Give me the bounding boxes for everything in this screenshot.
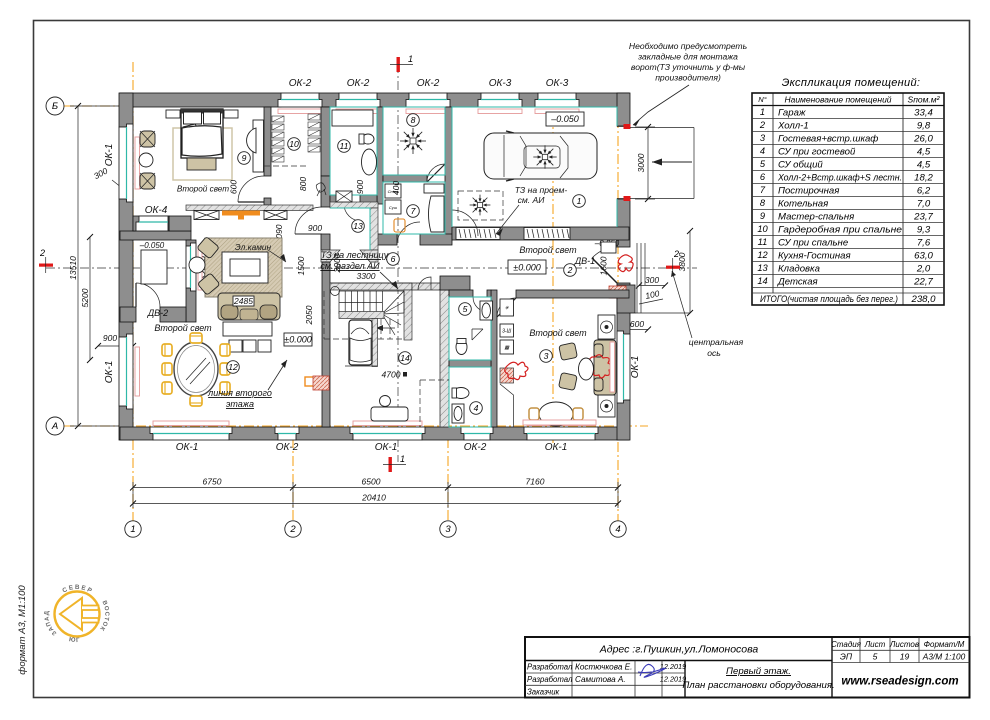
svg-text:1: 1 xyxy=(130,524,135,535)
svg-text:13: 13 xyxy=(353,221,363,231)
svg-text:Экспликация помещений:: Экспликация помещений: xyxy=(782,77,920,89)
svg-text:2: 2 xyxy=(289,524,296,535)
svg-text:ОК-1: ОК-1 xyxy=(176,442,199,453)
svg-text:±0.000: ±0.000 xyxy=(284,335,311,345)
svg-text:1500: 1500 xyxy=(296,256,306,275)
svg-text:23,7: 23,7 xyxy=(913,211,933,222)
svg-text:1: 1 xyxy=(400,454,405,464)
svg-text:6,2: 6,2 xyxy=(917,185,931,196)
svg-text:3-Ш: 3-Ш xyxy=(502,329,511,335)
svg-text:400: 400 xyxy=(391,181,401,195)
svg-text:ОК-1: ОК-1 xyxy=(630,356,641,379)
svg-text:238,0: 238,0 xyxy=(910,294,936,305)
svg-text:600: 600 xyxy=(229,180,239,194)
svg-text:18,2: 18,2 xyxy=(914,172,933,183)
svg-text:33,4: 33,4 xyxy=(914,107,933,118)
svg-text:Постирочная: Постирочная xyxy=(778,185,839,196)
svg-text:СУ общий: СУ общий xyxy=(778,159,823,170)
svg-text:4,5: 4,5 xyxy=(917,159,931,170)
svg-text:Кухня-Гостиная: Кухня-Гостиная xyxy=(778,250,851,261)
svg-text:4: 4 xyxy=(474,403,479,413)
svg-text:ОК-2: ОК-2 xyxy=(289,78,312,89)
svg-text:2: 2 xyxy=(673,249,679,259)
svg-text:Необходимо предусмотреть: Необходимо предусмотреть xyxy=(629,41,748,51)
svg-text:1: 1 xyxy=(408,54,413,64)
svg-text:3: 3 xyxy=(760,133,766,143)
svg-text:ОК-3: ОК-3 xyxy=(489,78,512,89)
svg-text:1: 1 xyxy=(577,196,582,206)
svg-text:этажа: этажа xyxy=(226,399,254,409)
svg-text:2050: 2050 xyxy=(304,305,314,325)
svg-text:закладные для монтажа: закладные для монтажа xyxy=(637,52,738,62)
svg-text:Первый этаж.: Первый этаж. xyxy=(726,666,791,677)
svg-text:ОК-2: ОК-2 xyxy=(347,78,370,89)
svg-text:СУ при спальне: СУ при спальне xyxy=(778,237,848,248)
svg-text:см. раздел АИ: см. раздел АИ xyxy=(320,261,380,271)
svg-text:6750: 6750 xyxy=(203,477,222,487)
svg-text:Б: Б xyxy=(52,101,58,112)
svg-text:Котельная: Котельная xyxy=(778,198,828,209)
svg-text:Гостевая+встр.шкаф: Гостевая+встр.шкаф xyxy=(778,133,878,144)
svg-text:Детская: Детская xyxy=(777,276,818,287)
svg-text:www.rseadesign.com: www.rseadesign.com xyxy=(841,676,958,688)
svg-text:7160: 7160 xyxy=(526,477,545,487)
svg-text:Второй свет: Второй свет xyxy=(177,185,229,194)
svg-text:Суш: Суш xyxy=(389,205,398,210)
svg-text:9: 9 xyxy=(242,153,247,163)
svg-text:Холл-1: Холл-1 xyxy=(777,120,809,131)
svg-text:ОК-2: ОК-2 xyxy=(417,78,440,89)
svg-text:см. АИ: см. АИ xyxy=(518,195,546,205)
svg-text:Разработал: Разработал xyxy=(527,675,573,684)
svg-text:–0.050: –0.050 xyxy=(550,114,579,124)
svg-text:11: 11 xyxy=(758,237,768,247)
svg-text:ОК-1: ОК-1 xyxy=(545,442,568,453)
svg-text:ось: ось xyxy=(707,348,721,358)
svg-text:4: 4 xyxy=(615,524,620,535)
svg-text:12: 12 xyxy=(228,362,238,372)
svg-text:ДВ-1: ДВ-1 xyxy=(574,256,595,266)
svg-text:5: 5 xyxy=(873,651,878,661)
svg-text:3000: 3000 xyxy=(636,153,646,172)
svg-text:–0.050: –0.050 xyxy=(139,241,165,250)
svg-text:Лист: Лист xyxy=(864,640,886,649)
svg-text:Мастер-спальня: Мастер-спальня xyxy=(778,211,854,222)
svg-text:9,3: 9,3 xyxy=(917,224,931,235)
svg-text:7,6: 7,6 xyxy=(917,237,931,248)
svg-text:8: 8 xyxy=(760,198,766,208)
svg-text:6: 6 xyxy=(391,254,396,264)
svg-text:3: 3 xyxy=(445,524,451,535)
svg-text:СУ при гостевой: СУ при гостевой xyxy=(778,146,856,157)
svg-text:4,5: 4,5 xyxy=(917,146,931,157)
svg-text:Стадия: Стадия xyxy=(831,640,862,649)
svg-text:2: 2 xyxy=(759,120,766,130)
svg-text:центральная: центральная xyxy=(689,337,744,347)
svg-text:2000: 2000 xyxy=(332,253,342,273)
svg-text:3300: 3300 xyxy=(357,271,376,281)
svg-text:14: 14 xyxy=(757,276,767,286)
svg-text:Второй свет: Второй свет xyxy=(154,323,212,333)
svg-text:План расстановки оборудования.: План расстановки оборудования. xyxy=(682,680,834,691)
svg-text:1: 1 xyxy=(760,107,765,117)
svg-text:4700: 4700 xyxy=(382,370,401,380)
svg-text:Самитова А.: Самитова А. xyxy=(575,675,626,684)
svg-text:ИТОГО(чистая площадь без перег: ИТОГО(чистая площадь без перег.) xyxy=(760,294,898,304)
svg-text:Sпом.м²: Sпом.м² xyxy=(908,95,941,105)
svg-text:900: 900 xyxy=(103,333,117,343)
svg-text:ворот(ТЗ уточнить у ф-мы: ворот(ТЗ уточнить у ф-мы xyxy=(631,62,746,72)
svg-text:12: 12 xyxy=(757,250,768,260)
svg-text:22,7: 22,7 xyxy=(913,276,933,287)
svg-text:ОК-1: ОК-1 xyxy=(375,442,398,453)
svg-text:Заказчик: Заказчик xyxy=(527,688,560,697)
svg-text:Адрес :г.Пушкин,ул.Ломоносова: Адрес :г.Пушкин,ул.Ломоносова xyxy=(599,644,759,656)
svg-text:2485: 2485 xyxy=(233,296,253,306)
svg-text:Гардеробная при спальне: Гардеробная при спальне xyxy=(778,224,902,235)
svg-text:Гараж: Гараж xyxy=(778,107,806,118)
svg-text:ОК-4: ОК-4 xyxy=(145,205,168,216)
svg-text:5: 5 xyxy=(463,304,468,314)
svg-text:N°: N° xyxy=(758,95,766,104)
svg-text:5200: 5200 xyxy=(80,288,90,307)
svg-text:ОК-2: ОК-2 xyxy=(464,442,487,453)
svg-text:ДВ-2: ДВ-2 xyxy=(147,308,168,318)
svg-text:9: 9 xyxy=(760,211,765,221)
svg-text:800: 800 xyxy=(298,177,308,191)
svg-text:ОК-2: ОК-2 xyxy=(276,442,299,453)
svg-text:7: 7 xyxy=(760,185,766,195)
svg-text:19: 19 xyxy=(900,651,910,661)
svg-text:Формат/М: Формат/М xyxy=(924,640,965,649)
svg-text:ЮГ: ЮГ xyxy=(68,636,81,644)
svg-text:Разработал: Разработал xyxy=(527,663,573,672)
svg-text:26,0: 26,0 xyxy=(913,133,933,144)
svg-text:5: 5 xyxy=(760,159,766,169)
svg-text:А3/М 1:100: А3/М 1:100 xyxy=(922,651,966,661)
svg-text:20410: 20410 xyxy=(361,493,386,503)
svg-text:Кладовка: Кладовка xyxy=(778,263,820,274)
svg-text:10: 10 xyxy=(757,224,768,234)
svg-text:ОК-3: ОК-3 xyxy=(546,78,569,89)
svg-text:900: 900 xyxy=(308,223,322,233)
svg-text:11: 11 xyxy=(340,141,349,151)
svg-text:ОК-1: ОК-1 xyxy=(104,144,115,167)
svg-text:900: 900 xyxy=(355,180,365,194)
svg-text:600: 600 xyxy=(630,319,644,329)
svg-text:ОК-1: ОК-1 xyxy=(104,361,115,384)
svg-text:Наименование помещений: Наименование помещений xyxy=(784,95,891,105)
svg-text:±0.000: ±0.000 xyxy=(513,263,540,273)
svg-text:13510: 13510 xyxy=(68,256,78,280)
svg-text:13: 13 xyxy=(757,263,768,273)
svg-text:3: 3 xyxy=(544,351,549,361)
svg-text:производителя): производителя) xyxy=(655,73,721,83)
svg-text:А: А xyxy=(51,421,58,432)
svg-text:формат А3, М1:100: формат А3, М1:100 xyxy=(17,585,28,675)
svg-text:Листов: Листов xyxy=(889,640,919,649)
svg-text:ЭП: ЭП xyxy=(840,651,853,661)
svg-text:6500: 6500 xyxy=(362,477,381,487)
svg-text:2: 2 xyxy=(567,265,573,275)
svg-text:63,0: 63,0 xyxy=(914,250,933,261)
svg-text:Костючкова Е.: Костючкова Е. xyxy=(575,663,632,672)
svg-text:10: 10 xyxy=(289,139,299,149)
svg-text:1600: 1600 xyxy=(599,256,609,275)
svg-text:Холл-2+Встр.шкаф+S лестн.: Холл-2+Встр.шкаф+S лестн. xyxy=(777,172,902,183)
svg-text:2: 2 xyxy=(39,248,45,258)
svg-text:7,0: 7,0 xyxy=(917,198,931,209)
svg-text:4: 4 xyxy=(760,146,765,156)
svg-text:9,8: 9,8 xyxy=(917,120,931,131)
svg-text:ТЗ на проем-: ТЗ на проем- xyxy=(515,185,568,195)
svg-text:Второй свет: Второй свет xyxy=(529,328,587,338)
svg-text:8: 8 xyxy=(411,115,416,125)
svg-text:6: 6 xyxy=(760,172,766,182)
svg-text:14: 14 xyxy=(400,353,410,363)
svg-text:2,0: 2,0 xyxy=(916,263,931,274)
svg-text:линия второго: линия второго xyxy=(207,388,272,398)
svg-text:Второй свет: Второй свет xyxy=(519,245,577,255)
svg-text:Эл.камин: Эл.камин xyxy=(235,242,272,252)
svg-text:300: 300 xyxy=(645,275,659,285)
